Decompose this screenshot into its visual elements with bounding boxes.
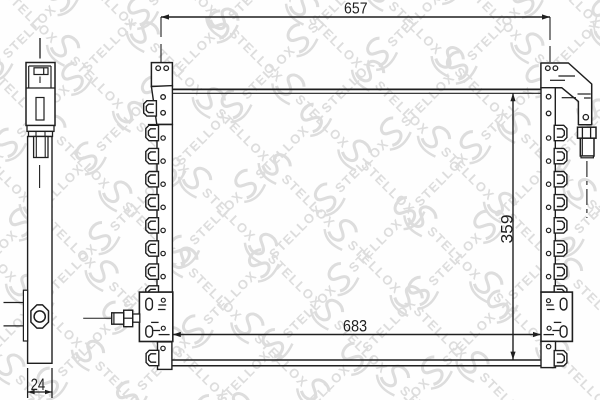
- svg-text:24: 24: [31, 376, 46, 394]
- svg-text:683: 683: [343, 317, 367, 335]
- svg-text:657: 657: [344, 1, 368, 18]
- svg-text:359: 359: [497, 215, 516, 244]
